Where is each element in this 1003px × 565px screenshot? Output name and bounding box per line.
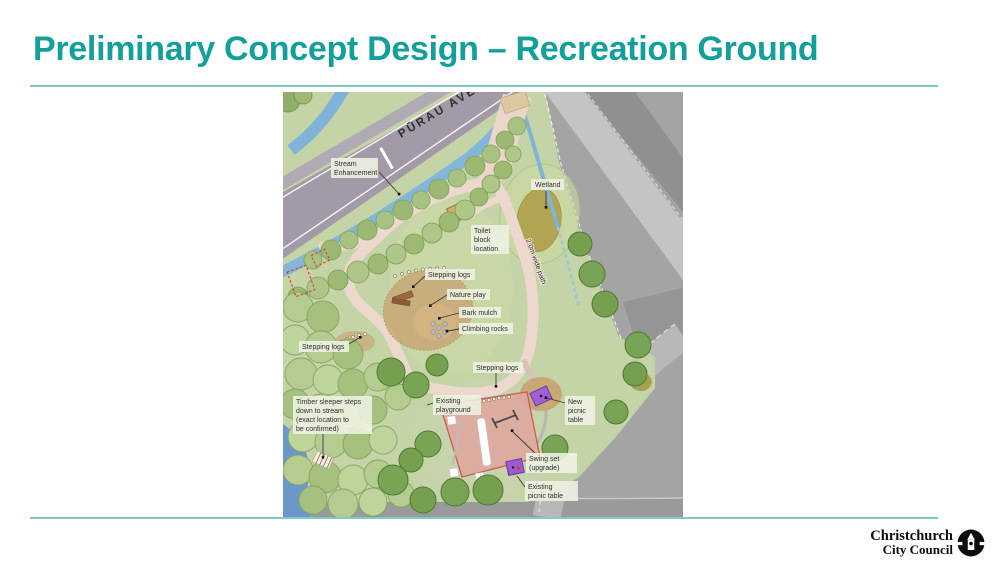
slide: Preliminary Concept Design – Recreation … (0, 0, 1003, 565)
svg-text:Bark mulch: Bark mulch (462, 310, 497, 317)
svg-text:Climbing rocks: Climbing rocks (462, 326, 508, 333)
label-climbing-rocks: Climbing rocks (459, 323, 513, 334)
svg-text:block: block (474, 237, 491, 244)
svg-text:(exact location to: (exact location to (296, 417, 349, 424)
label-new-picnic-table: New picnic table (565, 396, 595, 425)
divider-bottom (30, 517, 938, 519)
svg-text:down to stream: down to stream (296, 408, 344, 415)
label-existing-picnic-table: Existing picnic table (525, 481, 578, 501)
concept-plan-svg: PŪRAU AVE (283, 92, 683, 517)
label-toilet-block: Toilet block location (471, 225, 509, 254)
council-logo-text: Christchurch City Council (870, 530, 953, 555)
label-stepping-logs-left: Stepping logs (299, 341, 349, 352)
svg-text:Toilet: Toilet (474, 228, 490, 235)
svg-text:table: table (568, 417, 583, 424)
label-swing-set: Swing set (upgrade) (526, 453, 577, 473)
page-title: Preliminary Concept Design – Recreation … (33, 30, 818, 69)
svg-text:Existing: Existing (436, 398, 461, 405)
picnic-table-existing (506, 458, 525, 475)
svg-text:(upgrade): (upgrade) (529, 465, 559, 472)
svg-text:Stepping logs: Stepping logs (476, 365, 519, 372)
svg-text:Existing: Existing (528, 484, 553, 491)
svg-text:picnic: picnic (568, 408, 586, 415)
label-stepping-logs-lower: Stepping logs (473, 362, 523, 373)
bark-mulch-area (413, 304, 457, 340)
svg-text:Nature play: Nature play (450, 292, 486, 299)
svg-text:location: location (474, 246, 498, 253)
cathedral-roundel-icon (957, 529, 985, 557)
label-nature-play: Nature play (447, 289, 490, 300)
council-name-line2: City Council (870, 544, 953, 556)
council-logo: Christchurch City Council (860, 529, 985, 557)
svg-text:Stepping logs: Stepping logs (428, 272, 471, 279)
svg-text:Swing set: Swing set (529, 456, 559, 463)
svg-text:Timber sleeper steps: Timber sleeper steps (296, 399, 362, 406)
label-stepping-logs-upper: Stepping logs (425, 269, 475, 280)
divider-top (30, 85, 938, 87)
svg-text:Enhancement: Enhancement (334, 170, 377, 177)
label-timber-steps: Timber sleeper steps down to stream (exa… (293, 396, 372, 434)
svg-text:picnic table: picnic table (528, 493, 563, 500)
label-stream-enhancement: Stream Enhancement (331, 158, 378, 178)
svg-text:playground: playground (436, 407, 471, 414)
label-wetland: Wetland (531, 179, 564, 190)
label-existing-playground: Existing playground (433, 395, 481, 415)
label-bark-mulch: Bark mulch (459, 307, 501, 318)
svg-text:Wetland: Wetland (535, 182, 561, 189)
svg-text:Stream: Stream (334, 161, 357, 168)
svg-text:Stepping logs: Stepping logs (302, 344, 345, 351)
svg-text:be confirmed): be confirmed) (296, 426, 339, 433)
svg-text:New: New (568, 399, 583, 406)
site-plan-map: PŪRAU AVE (283, 92, 683, 517)
